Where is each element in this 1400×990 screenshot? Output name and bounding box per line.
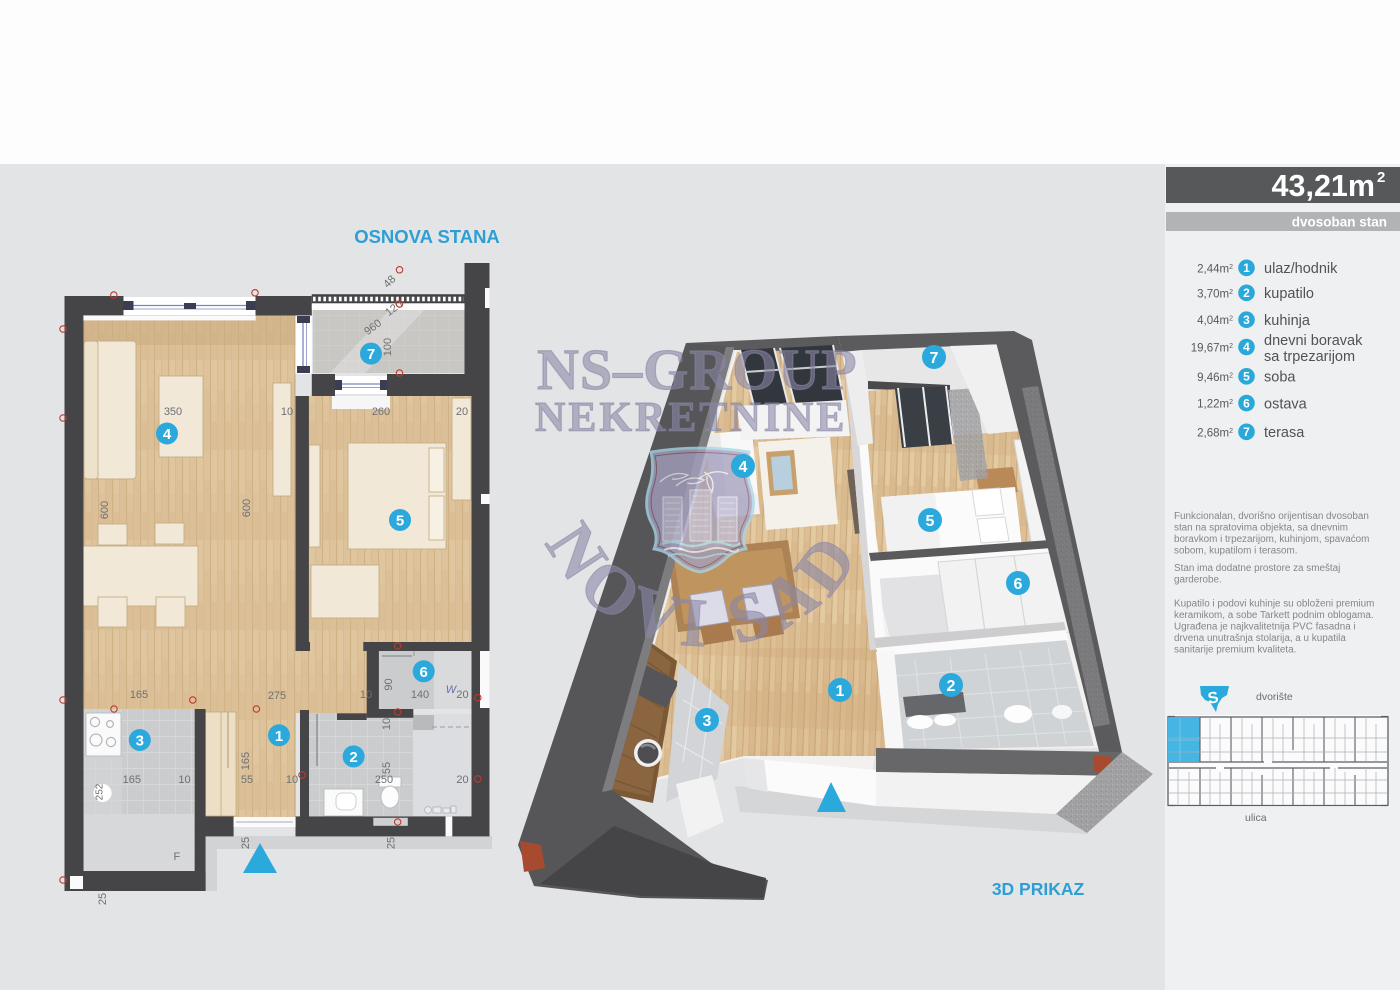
svg-text:4: 4 <box>739 459 748 476</box>
svg-text:9,46m2: 9,46m2 <box>1197 372 1233 384</box>
svg-text:2: 2 <box>349 749 357 766</box>
svg-text:5: 5 <box>1243 370 1250 384</box>
svg-text:250: 250 <box>375 774 393 786</box>
svg-text:6: 6 <box>420 664 428 681</box>
svg-text:kupatilo: kupatilo <box>1264 286 1314 302</box>
svg-text:5: 5 <box>926 513 935 530</box>
svg-text:garderobe.: garderobe. <box>1174 575 1222 586</box>
svg-text:2: 2 <box>1243 286 1250 300</box>
svg-text:10: 10 <box>360 689 372 701</box>
svg-text:Stan ima dodatne prostore za s: Stan ima dodatne prostore za smeštaj <box>1174 563 1340 574</box>
svg-text:7: 7 <box>1243 425 1250 439</box>
svg-text:7: 7 <box>367 346 375 363</box>
svg-text:275: 275 <box>268 690 286 702</box>
svg-text:600: 600 <box>241 499 253 517</box>
svg-text:1,22m2: 1,22m2 <box>1197 399 1233 411</box>
svg-text:55: 55 <box>381 762 393 774</box>
svg-text:25: 25 <box>240 837 252 849</box>
svg-text:ostava: ostava <box>1264 396 1308 412</box>
svg-text:soba: soba <box>1264 370 1296 386</box>
svg-text:1: 1 <box>836 683 845 700</box>
svg-text:sanitarije premium kvaliteta.: sanitarije premium kvaliteta. <box>1174 645 1296 656</box>
svg-text:dvosoban stan: dvosoban stan <box>1292 215 1387 230</box>
svg-text:sa trpezarijom: sa trpezarijom <box>1264 349 1355 365</box>
svg-text:4,04m2: 4,04m2 <box>1197 315 1233 327</box>
svg-text:10: 10 <box>286 774 298 786</box>
svg-text:6: 6 <box>1014 576 1023 593</box>
svg-text:boravkom i trpezarijom, kuhinj: boravkom i trpezarijom, kuhinjom, spavać… <box>1174 534 1369 545</box>
svg-text:25: 25 <box>97 893 109 905</box>
svg-text:55: 55 <box>241 774 253 786</box>
svg-text:NS–GROUP: NS–GROUP <box>537 337 858 402</box>
svg-text:165: 165 <box>130 689 148 701</box>
svg-text:1: 1 <box>1243 261 1250 275</box>
svg-text:W: W <box>446 684 458 696</box>
svg-text:keramikom, a sobe Tarkett podn: keramikom, a sobe Tarkett podnim oblogam… <box>1174 610 1374 621</box>
svg-text:19,67m2: 19,67m2 <box>1191 343 1233 355</box>
svg-text:F: F <box>174 851 181 863</box>
svg-text:10: 10 <box>281 406 293 418</box>
svg-text:3: 3 <box>703 713 712 730</box>
svg-text:10: 10 <box>381 718 393 730</box>
svg-text:5: 5 <box>396 513 404 530</box>
svg-text:3D PRIKAZ: 3D PRIKAZ <box>992 879 1085 899</box>
svg-text:6: 6 <box>1243 396 1250 410</box>
svg-text:OSNOVA STANA: OSNOVA STANA <box>354 226 500 247</box>
svg-text:terasa: terasa <box>1264 425 1305 441</box>
svg-text:Kupatilo i podovi kuhinje su o: Kupatilo i podovi kuhinje su obloženi pr… <box>1174 599 1374 610</box>
svg-text:25: 25 <box>386 837 398 849</box>
svg-text:600: 600 <box>99 501 111 519</box>
svg-text:2: 2 <box>1377 169 1385 186</box>
svg-text:43,21m: 43,21m <box>1272 169 1375 203</box>
svg-text:3: 3 <box>1243 313 1250 327</box>
svg-text:3: 3 <box>136 733 144 750</box>
svg-text:252: 252 <box>95 783 106 800</box>
svg-text:kuhinja: kuhinja <box>1264 313 1311 329</box>
svg-text:Funkcionalan, dvorišno orijent: Funkcionalan, dvorišno orijentisan dvoso… <box>1174 511 1369 522</box>
svg-text:4: 4 <box>163 426 172 443</box>
svg-text:Ugrađena je najkvalitetnija PV: Ugrađena je najkvalitetnija PVC fasadna … <box>1174 622 1356 633</box>
svg-text:100: 100 <box>382 338 394 356</box>
svg-text:ulaz/hodnik: ulaz/hodnik <box>1264 261 1338 277</box>
svg-text:dvorište: dvorište <box>1256 691 1293 703</box>
svg-text:4: 4 <box>1243 340 1250 354</box>
svg-text:20: 20 <box>456 689 468 701</box>
svg-text:2: 2 <box>947 678 956 695</box>
svg-text:7: 7 <box>930 350 939 367</box>
svg-text:90: 90 <box>383 678 395 690</box>
svg-text:165: 165 <box>123 774 141 786</box>
svg-text:165: 165 <box>240 752 252 770</box>
svg-text:2,68m2: 2,68m2 <box>1197 427 1233 439</box>
svg-text:sobom, kupatilom i terasom.: sobom, kupatilom i terasom. <box>1174 546 1298 557</box>
svg-text:1: 1 <box>275 728 283 745</box>
svg-text:20: 20 <box>456 774 468 786</box>
svg-text:drvena unutrašnja stolarija, a: drvena unutrašnja stolarija, a u kupatil… <box>1174 633 1346 644</box>
svg-text:NEKRETNINE: NEKRETNINE <box>535 395 847 441</box>
svg-text:ulica: ulica <box>1245 812 1267 824</box>
svg-text:stan na spratovima objekta, sa: stan na spratovima objekta, sa dnevnim <box>1174 523 1348 534</box>
svg-text:10: 10 <box>178 774 190 786</box>
svg-text:3,70m2: 3,70m2 <box>1197 288 1233 300</box>
svg-text:dnevni boravak: dnevni boravak <box>1264 333 1363 349</box>
svg-text:20: 20 <box>456 406 468 418</box>
svg-text:2,44m2: 2,44m2 <box>1197 263 1233 275</box>
svg-text:260: 260 <box>372 406 390 418</box>
svg-text:140: 140 <box>411 689 429 701</box>
svg-text:350: 350 <box>164 406 182 418</box>
